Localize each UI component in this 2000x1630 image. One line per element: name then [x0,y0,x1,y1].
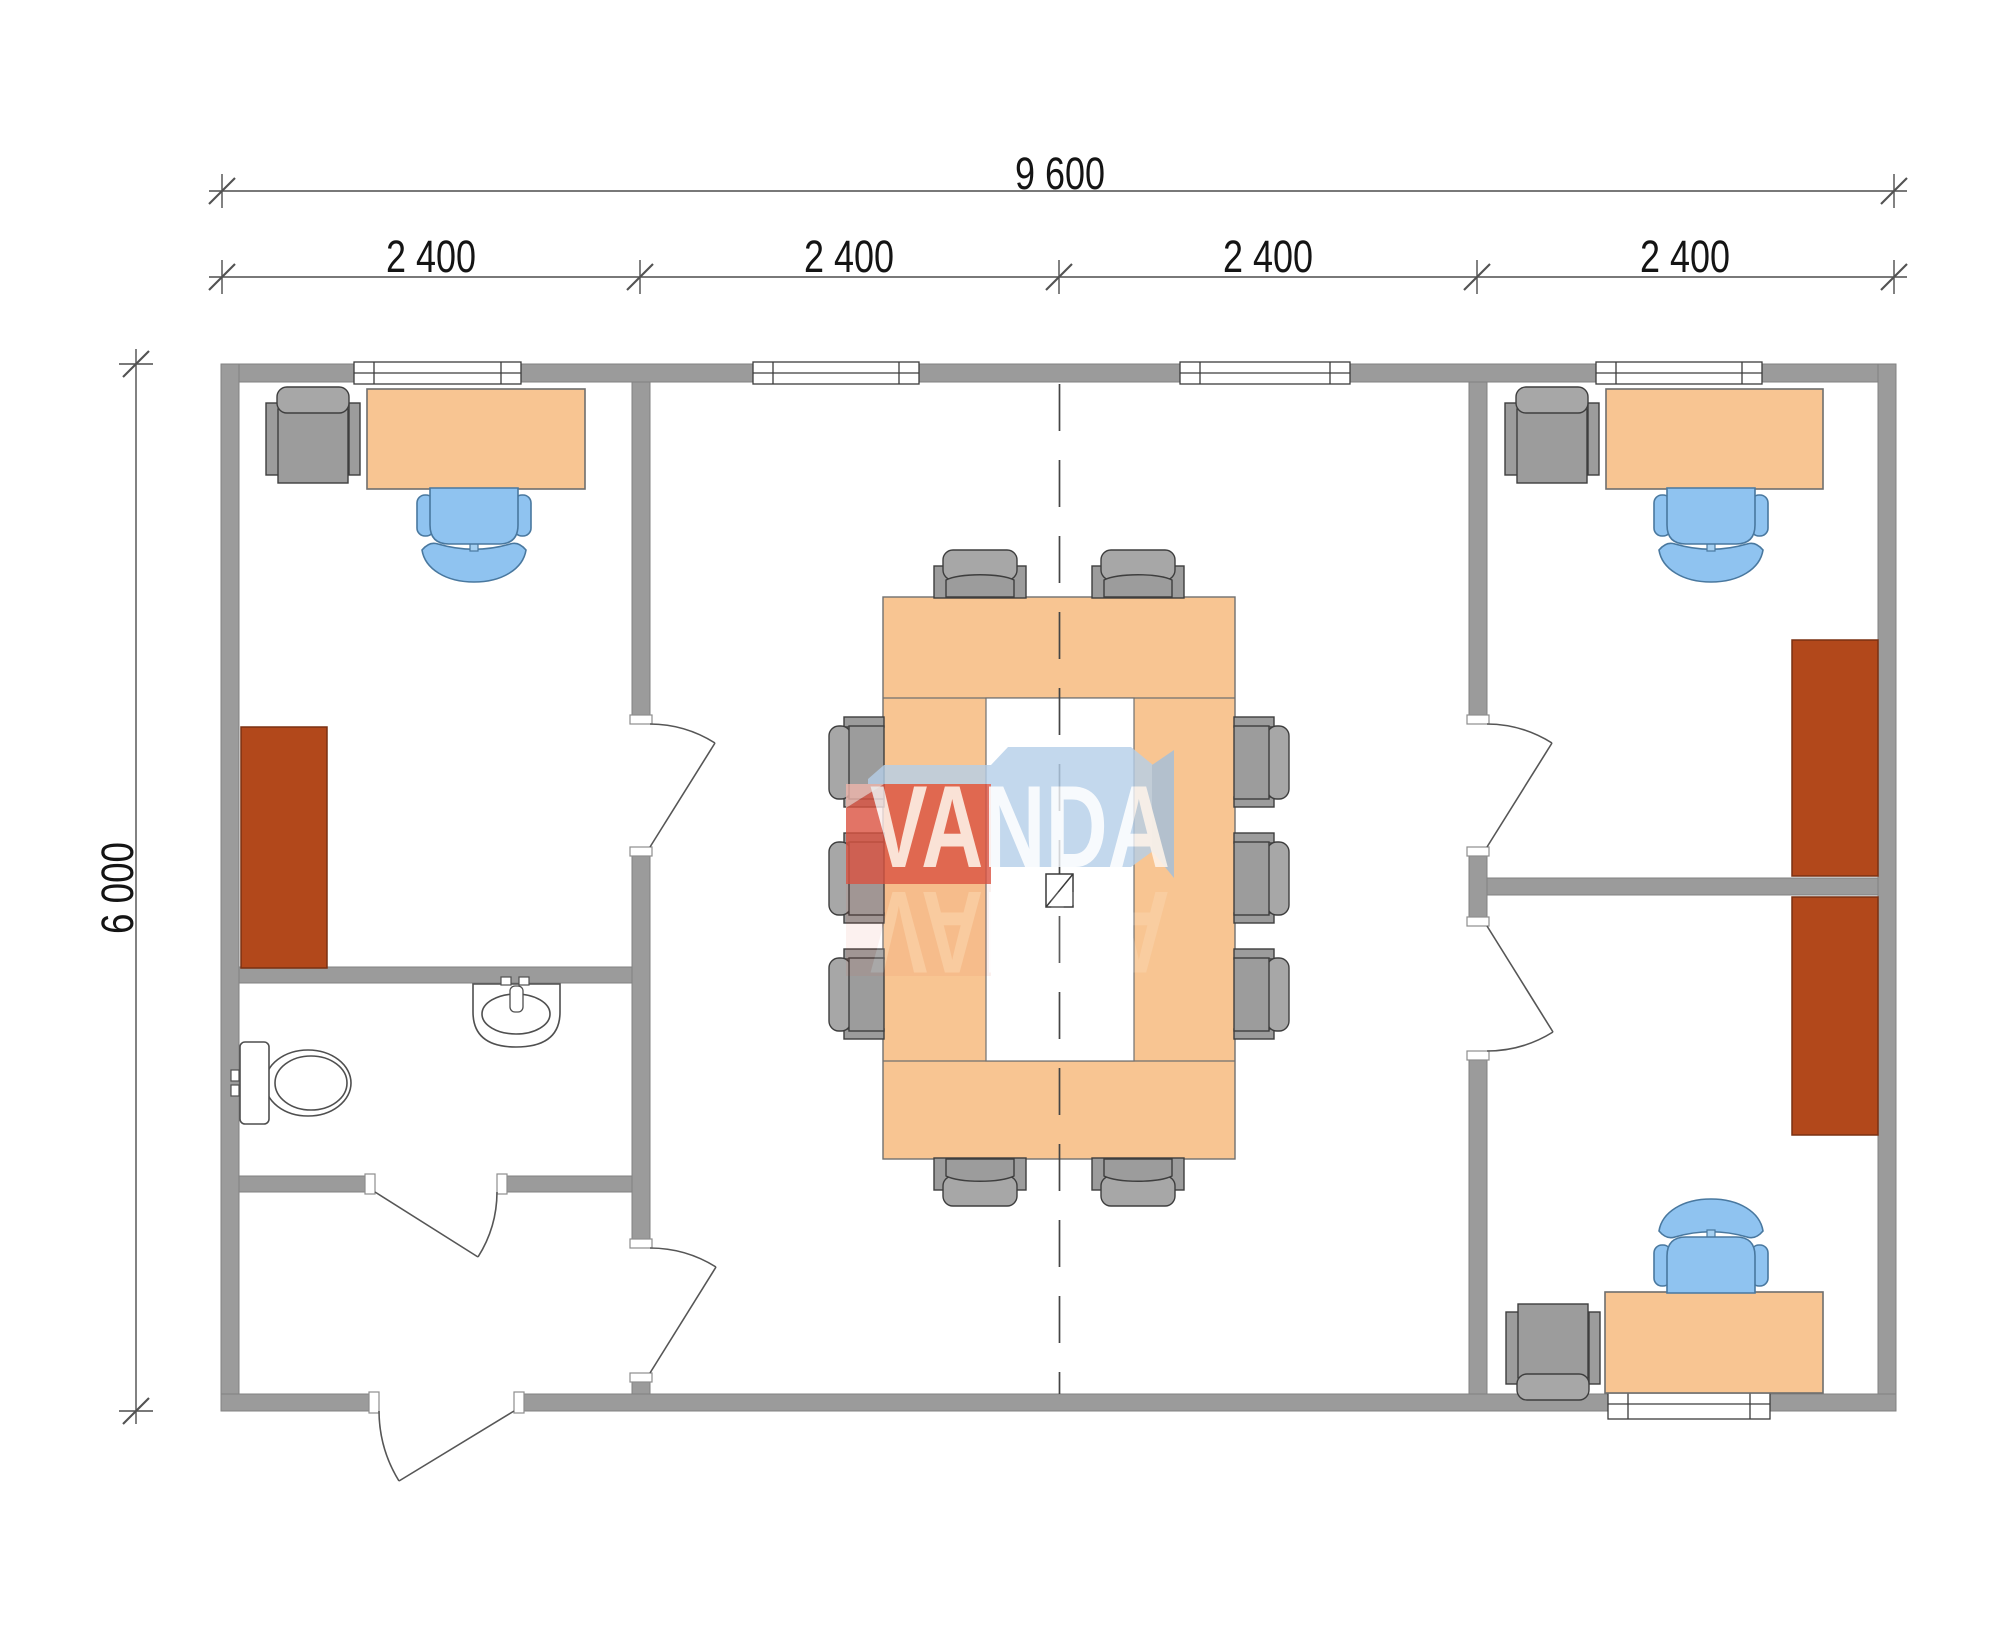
svg-text:VANDA: VANDA [870,761,1170,892]
svg-text:2 400: 2 400 [386,231,476,282]
svg-text:6 000: 6 000 [92,842,143,934]
svg-text:2 400: 2 400 [1223,231,1313,282]
svg-text:2 400: 2 400 [1640,231,1730,282]
svg-text:2 400: 2 400 [804,231,894,282]
svg-text:9 600: 9 600 [1015,148,1105,199]
